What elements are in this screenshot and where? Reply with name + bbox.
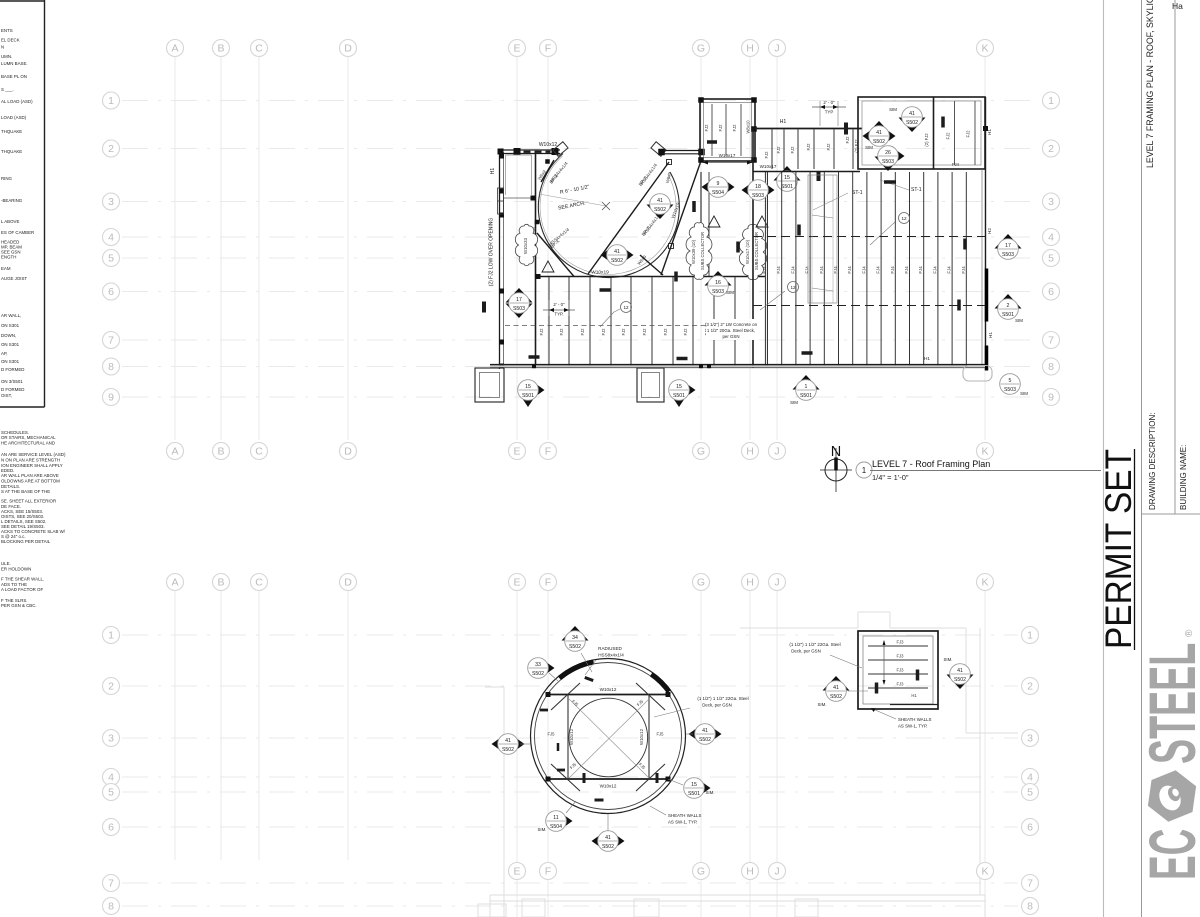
svg-text:(3 1/2") 2" LW Concrete on: (3 1/2") 2" LW Concrete on	[705, 322, 758, 327]
svg-text:FJ4: FJ4	[961, 266, 966, 274]
svg-text:FJ2: FJ2	[776, 146, 781, 154]
svg-text:S502: S502	[532, 671, 544, 677]
svg-text:J: J	[774, 866, 779, 878]
svg-text:2: 2	[108, 143, 114, 155]
svg-text:FJ3: FJ3	[897, 654, 905, 659]
svg-text:6: 6	[108, 822, 114, 834]
svg-text:A: A	[171, 446, 178, 458]
svg-text:EAM: EAM	[1, 266, 11, 271]
svg-text:SIM: SIM	[1015, 318, 1023, 323]
svg-text:C: C	[255, 446, 263, 458]
svg-text:TYP: TYP	[825, 110, 834, 115]
svg-text:F: F	[545, 577, 551, 589]
svg-text:S502: S502	[873, 139, 885, 145]
svg-text:FJ2: FJ2	[790, 146, 795, 154]
svg-text:15: 15	[525, 384, 531, 390]
svg-text:1: 1	[862, 466, 867, 475]
svg-text:1: 1	[805, 384, 808, 390]
svg-text:ENGTH: ENGTH	[1, 255, 16, 260]
svg-text:1/4" = 1'-0": 1/4" = 1'-0"	[872, 473, 909, 482]
svg-text:FJ3: FJ3	[897, 682, 905, 687]
svg-text:FJ4: FJ4	[918, 266, 923, 274]
svg-text:AR WALL,: AR WALL,	[1, 313, 21, 318]
svg-text:F: F	[545, 866, 551, 878]
svg-text:FJ2: FJ2	[826, 143, 831, 151]
svg-text:2: 2	[108, 681, 114, 693]
svg-text:ON S301: ON S301	[1, 359, 20, 364]
svg-text:FJ2: FJ2	[683, 328, 688, 336]
svg-text:41: 41	[657, 198, 663, 204]
svg-text:SHEATH WALLS: SHEATH WALLS	[668, 813, 701, 818]
svg-text:S501: S501	[673, 393, 685, 399]
svg-text:5: 5	[108, 787, 114, 799]
svg-text:41: 41	[909, 111, 915, 117]
svg-text:E: E	[513, 43, 520, 55]
svg-text:41: 41	[957, 668, 963, 674]
svg-text:W10x33: W10x33	[523, 237, 528, 254]
svg-text:UMN.: UMN.	[1, 54, 12, 59]
svg-text:RADIUSED: RADIUSED	[598, 646, 622, 651]
svg-text:3: 3	[108, 733, 114, 745]
svg-text:OR STAIRS, MECHANICAL: OR STAIRS, MECHANICAL	[1, 435, 56, 440]
svg-text:FJ4: FJ4	[947, 266, 952, 274]
svg-text:17: 17	[516, 297, 522, 303]
svg-text:BLOCKING PER DETAIL: BLOCKING PER DETAIL	[1, 539, 51, 544]
svg-text:FJ2: FJ2	[966, 130, 971, 138]
svg-text:15: 15	[784, 175, 790, 181]
svg-text:D FORMED: D FORMED	[1, 387, 24, 392]
svg-text:W10x17: W10x17	[760, 164, 777, 169]
svg-text:PERMIT SET: PERMIT SET	[1098, 449, 1139, 649]
svg-text:S503: S503	[1004, 387, 1016, 393]
svg-text:41: 41	[614, 249, 620, 255]
svg-text:12: 12	[790, 285, 796, 290]
svg-text:PER GSN & CBC.: PER GSN & CBC.	[1, 603, 37, 608]
svg-text:W10x12: W10x12	[600, 687, 617, 692]
svg-text:W10x19: W10x19	[591, 270, 609, 276]
svg-text:A LOAD FACTOR OF: A LOAD FACTOR OF	[1, 587, 43, 592]
svg-text:4: 4	[108, 232, 114, 244]
svg-text:K: K	[981, 866, 988, 878]
svg-text:FJ4: FJ4	[904, 266, 909, 274]
svg-text:AL LOAD (ASD): AL LOAD (ASD)	[1, 99, 33, 104]
svg-text:16: 16	[715, 280, 721, 286]
svg-text:SUBS COLLECTOR: SUBS COLLECTOR	[754, 232, 759, 270]
svg-text:H1: H1	[490, 168, 496, 175]
svg-text:6: 6	[1027, 822, 1033, 834]
svg-text:FJ2: FJ2	[764, 151, 769, 159]
svg-text:N: N	[1, 45, 4, 50]
svg-text:ON 3/S501: ON 3/S501	[1, 379, 23, 384]
svg-text:(2) FJ2 LOW OVER OPENING: (2) FJ2 LOW OVER OPENING	[489, 218, 495, 287]
svg-text:H1: H1	[924, 356, 930, 361]
svg-text:ULE.: ULE.	[1, 561, 11, 566]
svg-text:15: 15	[676, 384, 682, 390]
svg-text:C: C	[255, 43, 263, 55]
svg-text:(1 1/2") 1 1/2" 22Ga. Steel: (1 1/2") 1 1/2" 22Ga. Steel	[789, 642, 840, 647]
svg-text:H1: H1	[911, 693, 917, 698]
svg-text:W10x12: W10x12	[639, 728, 644, 745]
svg-text:AR WALL PLAN ARE ABOVE: AR WALL PLAN ARE ABOVE	[1, 473, 59, 478]
svg-text:OIST,: OIST,	[1, 393, 12, 398]
svg-text:K: K	[981, 577, 988, 589]
svg-text:HE ARCHITECTURAL AND: HE ARCHITECTURAL AND	[1, 441, 55, 446]
svg-text:FJ2: FJ2	[642, 328, 647, 336]
svg-text:FJ5: FJ5	[657, 732, 665, 737]
svg-text:(2) FJ2: (2) FJ2	[924, 133, 929, 147]
svg-text:H: H	[746, 43, 754, 55]
svg-text:Deck, per GSN: Deck, per GSN	[791, 649, 821, 654]
svg-text:S502: S502	[954, 677, 966, 683]
svg-text:SIM: SIM	[1020, 391, 1028, 396]
svg-text:-BEARING: -BEARING	[1, 198, 23, 203]
svg-text:FJ2: FJ2	[806, 143, 811, 151]
svg-text:H1: H1	[780, 119, 787, 125]
svg-text:per GSN: per GSN	[722, 334, 739, 339]
svg-text:S503: S503	[513, 306, 525, 312]
svg-text:H2: H2	[987, 228, 992, 234]
svg-text:S502: S502	[830, 694, 842, 700]
svg-text:S ___.: S ___.	[1, 87, 14, 92]
svg-text:1: 1	[1027, 630, 1033, 642]
svg-text:17: 17	[1005, 243, 1011, 249]
svg-text:4: 4	[1027, 772, 1033, 784]
svg-text:FJ2: FJ2	[718, 124, 723, 132]
svg-text:FJ2: FJ2	[559, 328, 564, 336]
svg-text:9: 9	[717, 181, 720, 187]
svg-text:STEEL: STEEL	[1136, 643, 1200, 764]
svg-text:FJ4: FJ4	[819, 266, 824, 274]
svg-text:C: C	[255, 577, 263, 589]
svg-text:LUMN BASE.: LUMN BASE.	[1, 61, 28, 66]
svg-text:4: 4	[1048, 232, 1054, 244]
svg-text:SIM: SIM	[790, 400, 798, 405]
svg-text:J: J	[774, 43, 779, 55]
svg-text:H: H	[746, 446, 754, 458]
svg-text:SHEATH WALLS: SHEATH WALLS	[898, 717, 931, 722]
svg-text:FJ2: FJ2	[539, 328, 544, 336]
svg-text:33: 33	[535, 662, 541, 668]
svg-text:S503: S503	[752, 193, 764, 199]
svg-text:8: 8	[108, 901, 114, 913]
svg-text:Ha: Ha	[1172, 1, 1183, 11]
svg-text:9: 9	[108, 392, 114, 404]
svg-text:FJ4: FJ4	[861, 266, 866, 274]
svg-text:E: E	[513, 866, 520, 878]
svg-text:BUILDING NAME:: BUILDING NAME:	[1179, 445, 1188, 510]
svg-text:L ABOVE: L ABOVE	[1, 219, 19, 224]
svg-text:S502: S502	[569, 644, 581, 650]
svg-text:B: B	[217, 43, 224, 55]
svg-text:S504: S504	[712, 190, 724, 196]
svg-text:FJ3: FJ3	[897, 640, 905, 645]
svg-text:FJ2: FJ2	[601, 328, 606, 336]
svg-text:D: D	[344, 446, 352, 458]
svg-text:3: 3	[1027, 733, 1033, 745]
svg-text:G: G	[697, 866, 705, 878]
svg-text:9: 9	[1048, 392, 1054, 404]
svg-text:K: K	[981, 446, 988, 458]
svg-text:FJ4: FJ4	[790, 266, 795, 274]
svg-text:FJ4: FJ4	[932, 266, 937, 274]
svg-text:7: 7	[1048, 335, 1054, 347]
svg-text:THQUAKE: THQUAKE	[1, 149, 22, 154]
svg-text:12: 12	[901, 216, 907, 221]
svg-text:S502: S502	[906, 120, 918, 126]
svg-text:N ON PLAN ARE STRENGTH: N ON PLAN ARE STRENGTH	[1, 458, 60, 463]
svg-text:SIM.: SIM.	[537, 827, 546, 832]
svg-text:34: 34	[572, 635, 578, 641]
svg-text:J: J	[774, 577, 779, 589]
svg-text:H: H	[746, 577, 754, 589]
svg-text:S501: S501	[781, 184, 793, 190]
svg-text:ST-1: ST-1	[852, 190, 863, 196]
svg-text:S502: S502	[611, 258, 623, 264]
svg-text:W10x12: W10x12	[600, 784, 617, 789]
svg-text:D: D	[344, 43, 352, 55]
svg-text:B: B	[217, 577, 224, 589]
svg-text:7: 7	[108, 335, 114, 347]
svg-text:AN ARE SERVICE LEVEL (ASD): AN ARE SERVICE LEVEL (ASD)	[1, 452, 66, 457]
svg-text:(1 1/2") 1 1/2" 22Ga. Steel: (1 1/2") 1 1/2" 22Ga. Steel	[697, 696, 748, 701]
svg-text:S501: S501	[522, 393, 534, 399]
svg-text:18: 18	[755, 184, 761, 190]
svg-text:2: 2	[1048, 143, 1054, 155]
svg-text:E: E	[513, 446, 520, 458]
svg-text:H1: H1	[988, 332, 993, 338]
svg-text:H: H	[746, 866, 754, 878]
svg-text:S502: S502	[502, 747, 514, 753]
svg-text:D FORMED: D FORMED	[1, 367, 24, 372]
svg-text:A: A	[171, 43, 178, 55]
svg-text:EC: EC	[1137, 829, 1200, 880]
svg-text:SIM: SIM	[889, 107, 897, 112]
svg-text:FJ4: FJ4	[890, 266, 895, 274]
svg-text:ER HOLDOWN: ER HOLDOWN	[1, 567, 31, 572]
svg-text:G: G	[697, 577, 705, 589]
svg-text:2: 2	[1027, 681, 1033, 693]
svg-text:S501: S501	[800, 393, 812, 399]
svg-text:ES OF CAMBER: ES OF CAMBER	[1, 230, 34, 235]
svg-text:S504: S504	[550, 824, 562, 830]
svg-text:ST-1: ST-1	[911, 187, 922, 193]
svg-text:AS SW-1, TYP.: AS SW-1, TYP.	[898, 724, 928, 729]
svg-text:3: 3	[108, 196, 114, 208]
svg-text:D: D	[344, 577, 352, 589]
svg-text:S503: S503	[712, 289, 724, 295]
svg-text:S502: S502	[699, 737, 711, 743]
svg-text:S AT THE BASE OF THE: S AT THE BASE OF THE	[1, 489, 50, 494]
svg-text:Deck, per GSN: Deck, per GSN	[702, 703, 732, 708]
svg-text:K: K	[981, 43, 988, 55]
svg-text:G: G	[697, 446, 705, 458]
svg-text:41: 41	[876, 130, 882, 136]
svg-text:1: 1	[108, 630, 114, 642]
svg-text:HSS8x4x1/4: HSS8x4x1/4	[598, 653, 624, 658]
svg-text:S501: S501	[1002, 312, 1014, 318]
svg-text:6: 6	[1048, 286, 1054, 298]
svg-text:TYP.: TYP.	[554, 312, 563, 317]
svg-text:2: 2	[1007, 303, 1010, 309]
svg-text:3: 3	[1048, 196, 1054, 208]
svg-text:5: 5	[108, 253, 114, 265]
svg-text:S501: S501	[688, 791, 700, 797]
svg-text:11: 11	[553, 815, 558, 821]
svg-text:FJ2: FJ2	[946, 132, 951, 140]
svg-text:W10x17 (10): W10x17 (10)	[745, 239, 750, 264]
svg-text:A: A	[171, 577, 178, 589]
svg-text:41: 41	[833, 685, 839, 691]
svg-text:LEVEL 7 - Roof Framing Plan: LEVEL 7 - Roof Framing Plan	[872, 459, 990, 469]
svg-text:EL DECK: EL DECK	[1, 38, 20, 43]
svg-text:THQUAKE: THQUAKE	[1, 129, 22, 134]
svg-text:12: 12	[623, 305, 629, 310]
svg-text:SUBS COLLECTOR: SUBS COLLECTOR	[700, 232, 705, 270]
svg-text:FJ4: FJ4	[776, 266, 781, 274]
svg-text:FJ2: FJ2	[732, 124, 737, 132]
svg-text:FJ2: FJ2	[621, 328, 626, 336]
svg-text:S503: S503	[1002, 252, 1014, 258]
svg-text:8: 8	[1027, 901, 1033, 913]
svg-text:W10x39 (10): W10x39 (10)	[691, 239, 696, 264]
svg-text:E: E	[513, 577, 520, 589]
svg-text:AUGE JOIST: AUGE JOIST	[1, 276, 27, 281]
svg-text:FJ3: FJ3	[897, 668, 905, 673]
svg-text:41: 41	[505, 738, 511, 744]
svg-text:LEVEL 7 FRAMING PLAN - ROOF, S: LEVEL 7 FRAMING PLAN - ROOF, SKYLIGHT S	[1145, 0, 1155, 168]
svg-text:ON S301: ON S301	[1, 323, 20, 328]
svg-text:F: F	[545, 43, 551, 55]
svg-text:1: 1	[108, 95, 114, 107]
svg-text:S502: S502	[654, 207, 666, 213]
svg-text:7: 7	[1027, 878, 1033, 890]
svg-text:1 1/2" 20Ga. Steel Deck,: 1 1/2" 20Ga. Steel Deck,	[707, 328, 755, 333]
svg-text:F: F	[545, 446, 551, 458]
svg-text:2' - 0": 2' - 0"	[823, 100, 835, 105]
svg-text:SE. SHEET ALL EXTERIOR: SE. SHEET ALL EXTERIOR	[1, 499, 56, 504]
svg-text:15: 15	[691, 782, 697, 788]
svg-text:FJ4: FJ4	[805, 266, 810, 274]
svg-text:SIM.: SIM.	[817, 702, 826, 707]
svg-text:41: 41	[605, 835, 611, 841]
svg-text:FJ4: FJ4	[952, 162, 960, 167]
svg-text:FJ4: FJ4	[762, 266, 767, 274]
svg-text:7: 7	[108, 878, 114, 890]
svg-text:SIM: SIM	[865, 145, 873, 150]
svg-text:FJ5: FJ5	[548, 732, 556, 737]
svg-text:J: J	[774, 446, 779, 458]
svg-text:FJ2: FJ2	[845, 136, 850, 144]
svg-text:5: 5	[1009, 378, 1012, 384]
svg-text:FJ2: FJ2	[580, 328, 585, 336]
svg-text:FJ2: FJ2	[663, 328, 668, 336]
svg-text:AP,: AP,	[1, 351, 8, 356]
svg-text:6: 6	[108, 286, 114, 298]
svg-text:W10x12: W10x12	[539, 142, 558, 148]
svg-text:W10x17: W10x17	[719, 153, 736, 158]
svg-text:ENTS: ENTS	[1, 28, 13, 33]
svg-text:ON S301: ON S301	[1, 342, 20, 347]
svg-text:1: 1	[1048, 95, 1054, 107]
svg-text:B: B	[217, 446, 224, 458]
svg-text:5: 5	[1048, 253, 1054, 265]
svg-text:OLDOWNS ARE AT BOTTOM: OLDOWNS ARE AT BOTTOM	[1, 479, 60, 484]
svg-text:FJ4: FJ4	[876, 266, 881, 274]
svg-text:BASE PL ON: BASE PL ON	[1, 74, 27, 79]
svg-text:SIM.: SIM.	[705, 790, 714, 795]
svg-text:26: 26	[885, 150, 891, 156]
svg-text:FJ2: FJ2	[704, 124, 709, 132]
svg-text:AS SW-1, TYP.: AS SW-1, TYP.	[668, 820, 698, 825]
svg-text:2' - 0": 2' - 0"	[553, 302, 565, 307]
svg-text:®: ®	[1184, 629, 1195, 637]
svg-text:LOAD (ASD): LOAD (ASD)	[1, 115, 27, 120]
svg-text:S503: S503	[882, 159, 894, 165]
svg-text:41: 41	[702, 728, 708, 734]
svg-text:DOWN,: DOWN,	[1, 333, 16, 338]
svg-text:DRAWING DESCRIPTION:: DRAWING DESCRIPTION:	[1148, 413, 1157, 510]
svg-text:4: 4	[108, 772, 114, 784]
svg-text:SIM.: SIM.	[943, 657, 952, 662]
svg-text:S502: S502	[602, 844, 614, 850]
svg-text:F THE SHEAR WALL.: F THE SHEAR WALL.	[1, 577, 44, 582]
svg-text:8: 8	[1048, 361, 1054, 373]
svg-text:W8x10: W8x10	[746, 120, 751, 134]
svg-text:8: 8	[108, 361, 114, 373]
svg-text:RING: RING	[1, 176, 13, 181]
svg-text:5: 5	[1027, 787, 1033, 799]
svg-text:FJ4: FJ4	[847, 266, 852, 274]
svg-text:SIM: SIM	[726, 290, 734, 295]
svg-text:G: G	[697, 43, 705, 55]
